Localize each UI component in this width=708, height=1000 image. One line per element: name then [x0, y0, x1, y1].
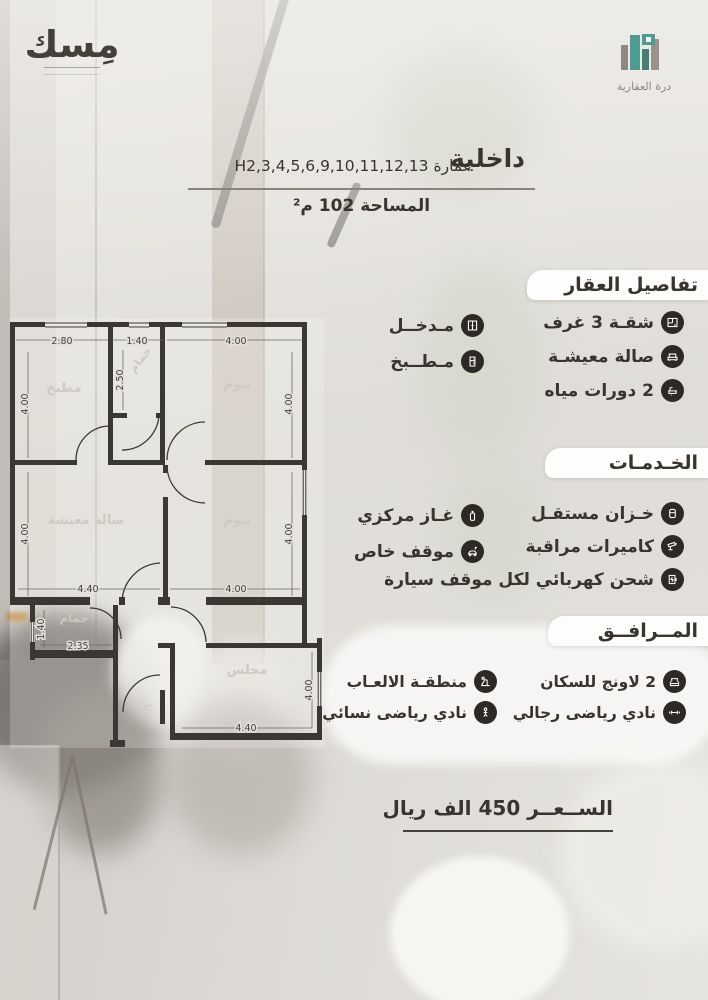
- dim-bedroom2-height: 4.00: [284, 523, 295, 544]
- apartment-rooms-icon: [661, 311, 684, 334]
- list-item-label: منطقـة الالعـاب: [347, 673, 467, 691]
- dim-bath-bottom-height: 1.40: [36, 618, 47, 639]
- list-item: غـاز مركزي: [354, 504, 484, 527]
- kitchen-icon: [461, 350, 484, 373]
- list-item: موقف خاص: [354, 540, 484, 563]
- womens-gym-icon: [474, 701, 497, 724]
- list-item-label: شحن كهربائي لكل موقف سيارة: [384, 570, 654, 590]
- mens-gym-icon: [663, 701, 686, 724]
- list-item-label: غـاز مركزي: [357, 506, 454, 526]
- dim-bedroom2-width: 4.00: [225, 584, 246, 595]
- dim-living-width: 4.40: [77, 584, 98, 595]
- cctv-camera-icon: [661, 535, 684, 558]
- durrah-logo: درة العقارية: [598, 30, 690, 93]
- property-details-left-column: مـدخــل مـطــبخ: [389, 314, 484, 373]
- glass-partition: [0, 745, 60, 1000]
- section-title-amenities: المــرافــق: [548, 616, 708, 646]
- price-label: الســعــر 450 الف ريال: [382, 796, 613, 820]
- dim-majlis-width: 4.40: [235, 723, 256, 734]
- bathrooms-icon: [661, 379, 684, 402]
- room-label-majlis: مجلس: [226, 663, 267, 678]
- entrance-icon: [461, 314, 484, 337]
- amenities-right-column: 2 لاونج للسكان نادي رياضى رجالي: [513, 670, 686, 724]
- private-parking-icon: [461, 540, 484, 563]
- dim-bedroom1-width: 4.00: [225, 336, 246, 347]
- central-gas-icon: [461, 504, 484, 527]
- residents-lounge-icon: [663, 670, 686, 693]
- list-item: منطقـة الالعـاب: [322, 670, 497, 693]
- list-item-label: موقف خاص: [354, 542, 454, 562]
- dim-kitchen-width: 2.80: [51, 336, 72, 347]
- playground-icon: [474, 670, 497, 693]
- building-numbers: عمارة H2,3,4,5,6,9,10,11,12,13: [234, 157, 472, 175]
- list-item: صالة معيشـة: [543, 345, 684, 368]
- list-item-label: مـدخــل: [389, 316, 454, 336]
- list-item-label: مـطــبخ: [390, 352, 454, 372]
- dim-bath-bottom-width: 2.35: [67, 641, 88, 652]
- header-divider: [188, 188, 535, 190]
- dim-bedroom1-height: 4.00: [284, 393, 295, 414]
- list-item-label: شقـة 3 غرف: [543, 313, 654, 333]
- list-item-label: 2 لاونج للسكان: [540, 673, 656, 691]
- list-item: شحن كهربائي لكل موقف سيارة: [384, 568, 684, 591]
- list-item-label: صالة معيشـة: [548, 347, 654, 367]
- list-item-label: نادي رياضى نسائي: [322, 704, 467, 722]
- property-details-right-column: شقـة 3 غرف صالة معيشـة 2 دورات مياه: [543, 311, 684, 402]
- dim-majlis-height: 4.00: [304, 679, 315, 700]
- list-item-label: كاميرات مراقبة: [526, 537, 654, 557]
- durrah-logo-text: درة العقارية: [598, 80, 690, 93]
- list-item: شقـة 3 غرف: [543, 311, 684, 334]
- floor-plan: 2.80 1.40 4.00 4.00 2.50 4.00 4.00 4.00 …: [0, 300, 354, 770]
- durrah-buildings-icon: [618, 30, 670, 72]
- dim-living-height: 4.00: [20, 523, 31, 544]
- misk-logo-tagline: [44, 67, 100, 75]
- section-title-services: الخـدمـات: [545, 448, 708, 478]
- living-hall-icon: [661, 345, 684, 368]
- property-flyer: مِسك درة العقارية داخلية عمارة H2,3,4,5,…: [0, 0, 708, 1000]
- list-item: مـطــبخ: [389, 350, 484, 373]
- room-label-living: صالة معيشة: [48, 513, 125, 528]
- amenities-left-column: منطقـة الالعـاب نادي رياضى نسائي: [322, 670, 497, 724]
- area-label: المساحة 102 م²: [188, 196, 535, 216]
- water-tank-icon: [661, 502, 684, 525]
- list-item: 2 لاونج للسكان: [513, 670, 686, 693]
- misk-logo: مِسك: [20, 26, 124, 75]
- price-underline: [403, 830, 613, 832]
- room-label-bedroom1: نـوم: [223, 377, 250, 392]
- dim-bath-top-height: 2.50: [115, 369, 126, 390]
- section-title-property-details: تفاصيل العقار: [527, 270, 708, 300]
- ev-charging-icon: [661, 568, 684, 591]
- list-item-label: نادي رياضى رجالي: [513, 704, 656, 722]
- misk-logo-text: مِسك: [20, 26, 124, 65]
- list-item: نادي رياضى نسائي: [322, 701, 497, 724]
- list-item-label: خـزان مستقـل: [531, 504, 654, 524]
- services-left-column: غـاز مركزي موقف خاص: [354, 504, 484, 563]
- room-label-bedroom2: نـوم: [223, 513, 250, 528]
- white-stool: [390, 856, 570, 1000]
- list-item-label: 2 دورات مياه: [544, 381, 654, 401]
- list-item: مـدخــل: [389, 314, 484, 337]
- dim-kitchen-height: 4.00: [20, 393, 31, 414]
- list-item: نادي رياضى رجالي: [513, 701, 686, 724]
- list-item: 2 دورات مياه: [543, 379, 684, 402]
- room-label-kitchen: مطبخ: [46, 381, 81, 396]
- room-label-bath-bottom: حمام: [60, 611, 89, 625]
